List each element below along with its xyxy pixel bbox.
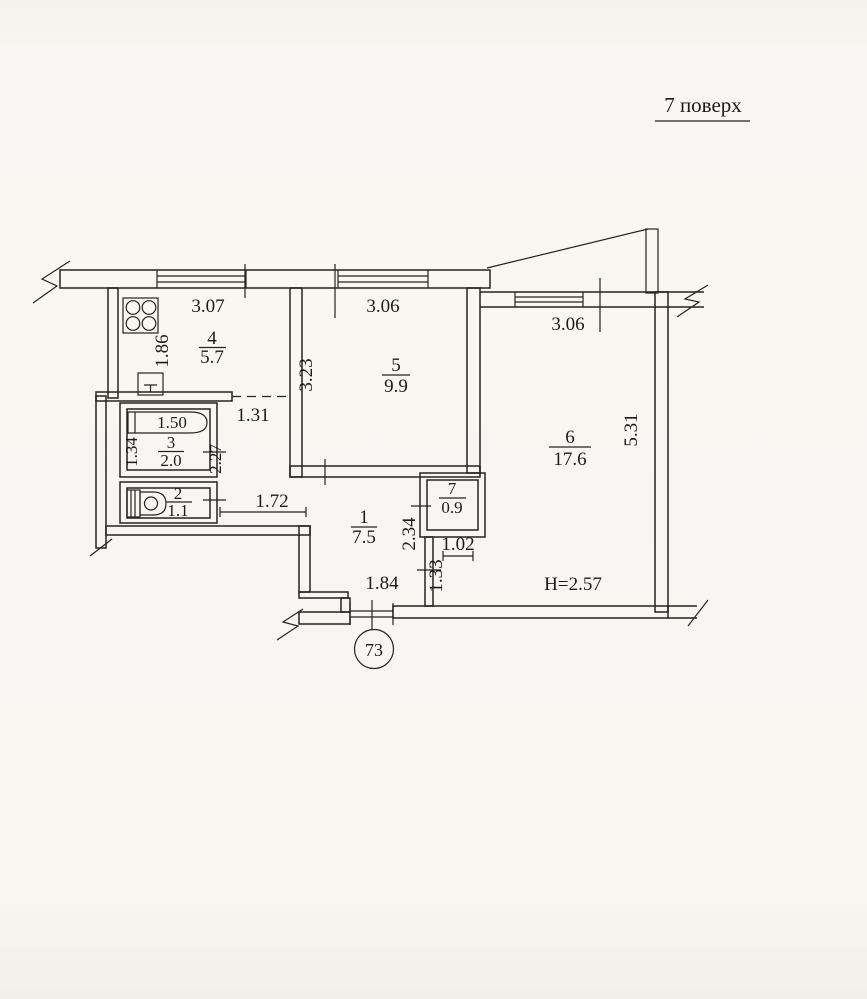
dim-room5-window: 3.06	[366, 296, 399, 317]
wall-break-icon	[33, 261, 70, 303]
dim-room6-depth: 5.31	[621, 413, 642, 446]
room-label-hall: 1 7.5	[351, 507, 377, 548]
dimension-lines	[220, 507, 473, 561]
dimension-labels: 3.07 3.06 3.06 1.86 3.23 1.31 2.27 1.34 …	[122, 296, 642, 595]
room6-window	[515, 292, 583, 307]
entrance-step-wall	[299, 592, 348, 598]
floor-title: 7 поверх	[655, 93, 750, 121]
room5-room6-wall	[467, 288, 480, 473]
dim-bathroom-width: 1.34	[122, 437, 141, 467]
corridor-bottom-wall	[106, 526, 310, 535]
top-wall-right	[480, 292, 704, 307]
entrance-jamb-wall	[341, 598, 350, 612]
room4-area: 5.7	[200, 347, 224, 368]
entrance: 73	[350, 600, 394, 669]
right-wall	[655, 292, 668, 612]
wall-end-tick	[688, 600, 708, 626]
room-label-bathroom: 3 2.0	[158, 433, 184, 470]
room4-number: 4	[207, 328, 217, 349]
room6-area: 17.6	[553, 449, 586, 470]
dim-kitchen-window: 3.07	[191, 296, 224, 317]
room1-area: 7.5	[352, 527, 376, 548]
dim-bathtub-length: 1.50	[157, 413, 187, 432]
room5-window	[338, 270, 428, 288]
room3-number: 3	[167, 433, 176, 452]
kitchen-bottom-wall	[96, 392, 232, 401]
left-outer-wall	[96, 396, 106, 548]
bottom-wall	[393, 606, 668, 618]
room-label-wc: 2 1.1	[166, 484, 192, 520]
room2-area: 1.1	[167, 501, 188, 520]
room7-number: 7	[448, 479, 457, 498]
room-labels: 4 5.7 5 9.9 6 17.6 1 7.5 7 0.9 3 2.0	[158, 328, 591, 548]
stove-icon	[123, 298, 158, 333]
dim-corridor-width: 1.72	[255, 491, 288, 512]
dim-bathroom-depth: 2.27	[206, 444, 225, 474]
balcony-slope-line	[487, 229, 648, 268]
kitchen-window	[157, 270, 246, 288]
bottom-wall-extension	[668, 606, 697, 618]
room6-number: 6	[565, 427, 575, 448]
room1-number: 1	[359, 507, 369, 528]
hall-left-wall	[299, 526, 310, 592]
room5-bottom-wall	[290, 466, 480, 477]
toilet-icon	[127, 490, 166, 517]
apartment-number-label: 73	[365, 640, 383, 660]
dim-kitchen-niche: 1.31	[236, 405, 269, 426]
dim-hall-right-lower: 1.33	[426, 559, 447, 592]
floor-title-label: 7 поверх	[664, 93, 742, 117]
balcony-post	[646, 229, 658, 293]
room-label-closet: 7 0.9	[439, 479, 466, 517]
room-label-kitchen: 4 5.7	[199, 328, 226, 368]
dim-hall-right-upper: 2.34	[399, 517, 420, 551]
room-label-room6: 6 17.6	[549, 427, 591, 470]
dim-room6-passage: 1.02	[441, 534, 474, 555]
fixtures	[123, 298, 207, 517]
room7-area: 0.9	[441, 498, 462, 517]
floor-plan-page: 7 поверх	[0, 0, 867, 999]
room3-area: 2.0	[160, 451, 181, 470]
dim-kitchen-depth: 1.86	[152, 334, 173, 367]
dim-entrance-width: 1.84	[365, 573, 399, 594]
room5-number: 5	[391, 355, 401, 376]
floor-plan-svg: 7 поверх	[0, 0, 867, 999]
ceiling-height-label: H=2.57	[544, 574, 602, 595]
dim-room6-window: 3.06	[551, 314, 584, 335]
room5-area: 9.9	[384, 376, 408, 397]
window-dimension-ticks	[245, 264, 600, 332]
bottom-wall-left	[299, 612, 350, 624]
kitchen-left-wall	[108, 288, 118, 398]
room-label-room5: 5 9.9	[382, 355, 410, 397]
wall-end-tick	[90, 539, 112, 556]
top-wall	[60, 270, 490, 288]
wall-break-icon	[677, 285, 708, 317]
dim-room5-depth: 3.23	[296, 358, 317, 391]
balcony-outline	[487, 229, 658, 293]
